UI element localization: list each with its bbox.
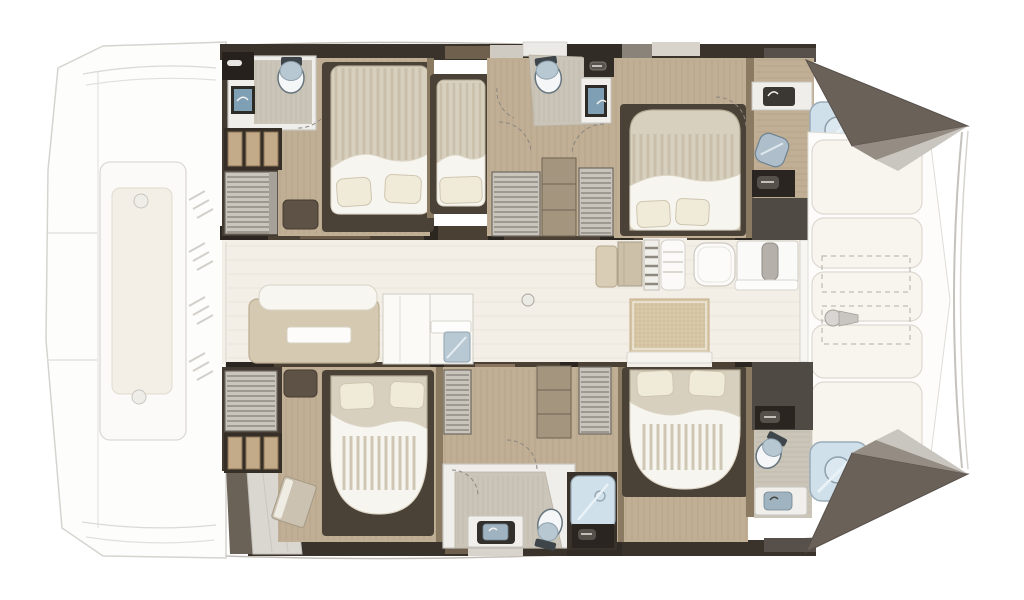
- bed-pillow: [675, 198, 709, 226]
- salon-fwd-sill: [627, 352, 712, 363]
- wall-segment: [490, 45, 523, 59]
- bow-head-sink: [763, 87, 795, 106]
- companionway-stairs-white: [661, 240, 685, 290]
- chart-console-inset: [762, 243, 778, 280]
- wardrobe-louver: [225, 371, 277, 431]
- wall-segment: [622, 44, 652, 59]
- bow-sunpad: [812, 218, 922, 268]
- salon-rug: [630, 299, 709, 352]
- wardrobe-side: [269, 172, 277, 234]
- cabin-mat: [284, 370, 317, 397]
- bed-pillow: [384, 174, 421, 204]
- wardrobe-louver: [579, 367, 611, 434]
- bed-pillow: [636, 200, 670, 228]
- bed-pillow: [339, 382, 374, 410]
- salon-sofa-back-cushion: [259, 285, 377, 310]
- hull-step-tread: [264, 437, 278, 469]
- bow-sunpad: [812, 325, 922, 378]
- chart-console-lip: [735, 280, 798, 290]
- bed-pillow: [336, 177, 372, 207]
- nav-seat: [596, 246, 617, 287]
- bow-head-dark-floor: [752, 198, 813, 240]
- salon-sofa-tray: [287, 327, 351, 343]
- nav-cabinet: [618, 242, 642, 286]
- salon-post: [522, 294, 534, 306]
- bath-sink-basin: [483, 524, 508, 540]
- wall-segment: [523, 42, 567, 56]
- hull-step-tread: [228, 132, 242, 166]
- floorplan-canvas: [0, 0, 1024, 600]
- wardrobe-louver: [492, 172, 540, 236]
- galley-sill: [431, 321, 471, 333]
- hull-step-tread: [246, 132, 260, 166]
- bath-sink-basin: [764, 492, 792, 510]
- mattress-stripes: [336, 68, 420, 160]
- wall-segment: [652, 42, 700, 56]
- bed-pillow: [440, 176, 483, 203]
- vanity-mirror-glass: [234, 89, 252, 111]
- hull-step-tread: [264, 132, 278, 166]
- bed-pillow: [636, 370, 673, 397]
- locker-handle: [227, 60, 242, 66]
- wardrobe-louver: [444, 370, 471, 434]
- mattress-stripes: [441, 83, 480, 159]
- wardrobe-louver: [579, 168, 613, 236]
- hull-step-tread: [246, 437, 260, 469]
- tender-platform-inner: [112, 188, 172, 394]
- bed-pillow: [389, 381, 424, 409]
- shelf-unit: [537, 366, 571, 438]
- wall-segment: [445, 46, 490, 59]
- bed-pillow: [688, 370, 725, 397]
- hull-step-tread: [228, 437, 242, 469]
- cabin-mat: [283, 200, 318, 229]
- deck-fitting-knob: [134, 194, 148, 208]
- deck-fitting-knob: [132, 390, 146, 404]
- bow-crossbeam-line: [961, 131, 969, 469]
- cabin-wall: [436, 367, 443, 542]
- floorplan-page: [0, 0, 1024, 600]
- toilet-lid: [280, 62, 302, 81]
- galley-cabinet: [383, 294, 430, 364]
- shelf-unit: [542, 158, 576, 236]
